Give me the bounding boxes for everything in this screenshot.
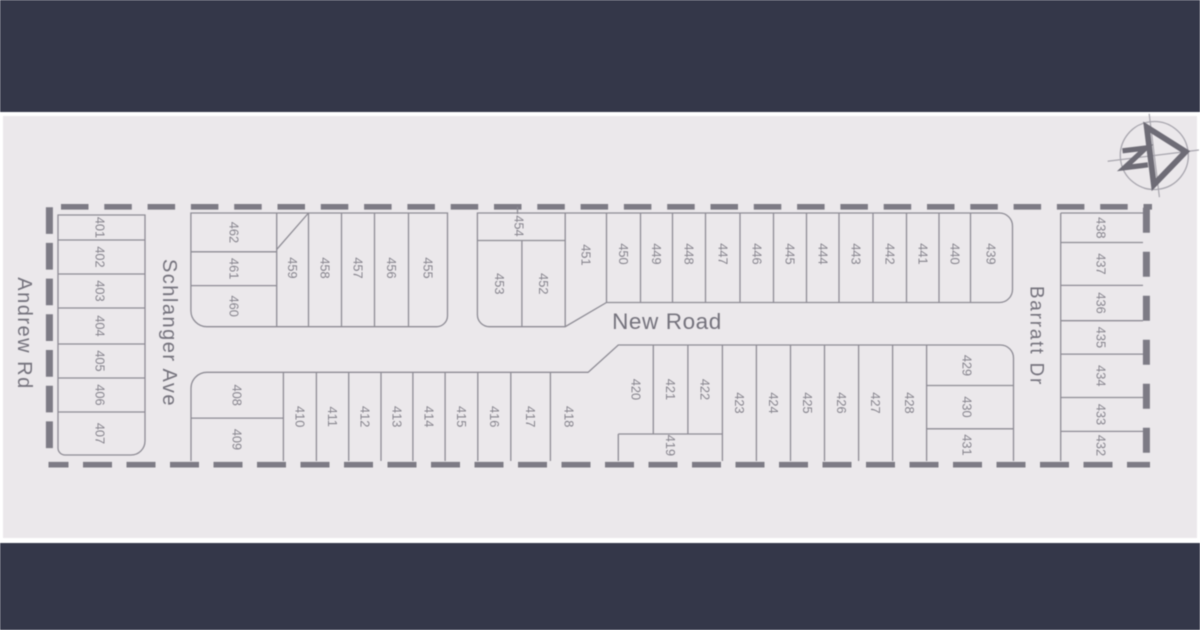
- svg-text:420: 420: [628, 379, 643, 400]
- svg-text:428: 428: [902, 392, 917, 413]
- svg-text:406: 406: [93, 384, 108, 405]
- svg-text:433: 433: [1094, 404, 1109, 425]
- svg-text:409: 409: [230, 429, 245, 450]
- svg-text:Barratt Dr: Barratt Dr: [1026, 286, 1047, 386]
- svg-text:438: 438: [1094, 217, 1109, 238]
- svg-text:458: 458: [318, 257, 333, 278]
- svg-text:425: 425: [800, 392, 815, 413]
- svg-text:460: 460: [226, 296, 241, 317]
- svg-text:432: 432: [1094, 435, 1109, 456]
- svg-text:422: 422: [698, 379, 713, 400]
- svg-text:411: 411: [325, 406, 340, 426]
- svg-text:454: 454: [512, 215, 527, 236]
- svg-text:408: 408: [230, 385, 245, 406]
- svg-text:424: 424: [766, 392, 781, 413]
- svg-text:415: 415: [454, 406, 469, 427]
- svg-text:404: 404: [93, 315, 108, 336]
- svg-text:444: 444: [815, 243, 830, 264]
- svg-text:416: 416: [487, 406, 502, 427]
- svg-text:443: 443: [849, 243, 864, 264]
- svg-text:439: 439: [984, 243, 999, 264]
- svg-text:452: 452: [536, 273, 551, 294]
- svg-text:436: 436: [1094, 292, 1109, 313]
- svg-text:431: 431: [960, 434, 975, 455]
- svg-text:421: 421: [663, 379, 678, 400]
- svg-text:403: 403: [93, 280, 108, 301]
- svg-text:449: 449: [649, 243, 664, 264]
- svg-text:461: 461: [226, 258, 241, 279]
- svg-text:459: 459: [285, 257, 300, 278]
- svg-text:448: 448: [682, 243, 697, 264]
- svg-text:410: 410: [292, 406, 307, 427]
- svg-text:445: 445: [783, 243, 798, 264]
- svg-text:462: 462: [226, 222, 241, 243]
- svg-text:434: 434: [1094, 365, 1109, 386]
- svg-text:401: 401: [93, 217, 108, 238]
- svg-text:437: 437: [1094, 253, 1109, 274]
- svg-text:455: 455: [421, 257, 436, 278]
- svg-text:413: 413: [390, 406, 405, 427]
- svg-text:426: 426: [834, 392, 849, 413]
- svg-text:457: 457: [351, 257, 366, 278]
- svg-text:423: 423: [732, 392, 747, 413]
- svg-text:451: 451: [578, 244, 593, 265]
- svg-text:414: 414: [422, 406, 437, 427]
- svg-text:407: 407: [93, 423, 108, 444]
- svg-text:453: 453: [492, 273, 507, 294]
- svg-text:405: 405: [93, 350, 108, 371]
- svg-text:New Road: New Road: [612, 309, 722, 334]
- svg-text:419: 419: [663, 435, 678, 456]
- svg-text:446: 446: [749, 243, 764, 264]
- svg-text:402: 402: [93, 246, 108, 267]
- svg-text:456: 456: [384, 257, 399, 278]
- svg-text:442: 442: [882, 243, 897, 264]
- svg-text:Andrew Rd: Andrew Rd: [13, 277, 35, 389]
- svg-text:417: 417: [523, 406, 538, 427]
- svg-text:429: 429: [960, 355, 975, 376]
- svg-text:447: 447: [715, 243, 730, 264]
- svg-text:440: 440: [947, 243, 962, 264]
- svg-text:435: 435: [1094, 327, 1109, 348]
- svg-text:441: 441: [915, 243, 930, 264]
- svg-text:430: 430: [960, 396, 975, 417]
- svg-text:Schlanger Ave: Schlanger Ave: [158, 259, 180, 407]
- svg-text:418: 418: [561, 406, 576, 427]
- svg-text:450: 450: [616, 243, 631, 264]
- svg-text:427: 427: [868, 392, 883, 413]
- svg-text:412: 412: [357, 406, 372, 427]
